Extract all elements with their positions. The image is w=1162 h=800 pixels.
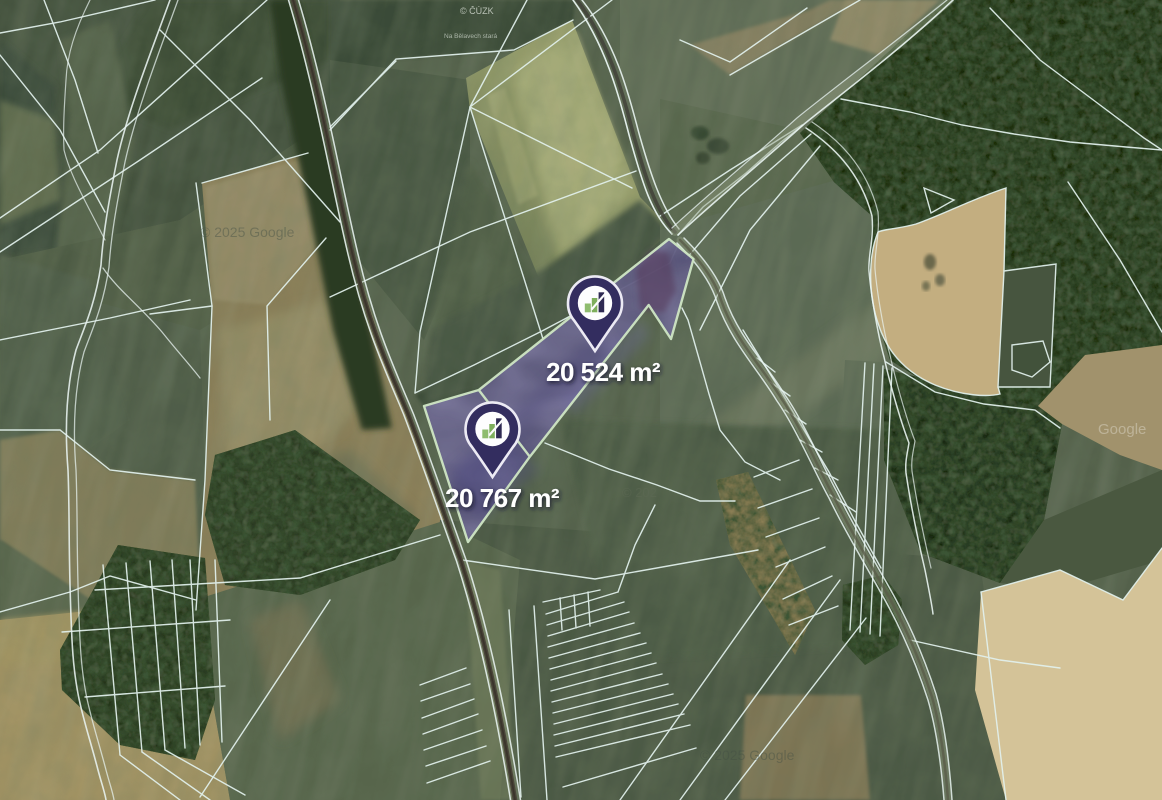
svg-text:© 202: © 202	[622, 485, 657, 500]
svg-text:Google: Google	[1098, 421, 1146, 438]
svg-text:Na Bělavech stará: Na Bělavech stará	[444, 33, 497, 40]
svg-text:© ČÚZK: © ČÚZK	[460, 6, 494, 16]
svg-text:© 2025 Google: © 2025 Google	[200, 224, 295, 240]
svg-text:20 767 m²: 20 767 m²	[445, 483, 560, 513]
svg-text:20 524 m²: 20 524 m²	[546, 357, 661, 387]
svg-text:© 2025 Google: © 2025 Google	[700, 747, 795, 763]
